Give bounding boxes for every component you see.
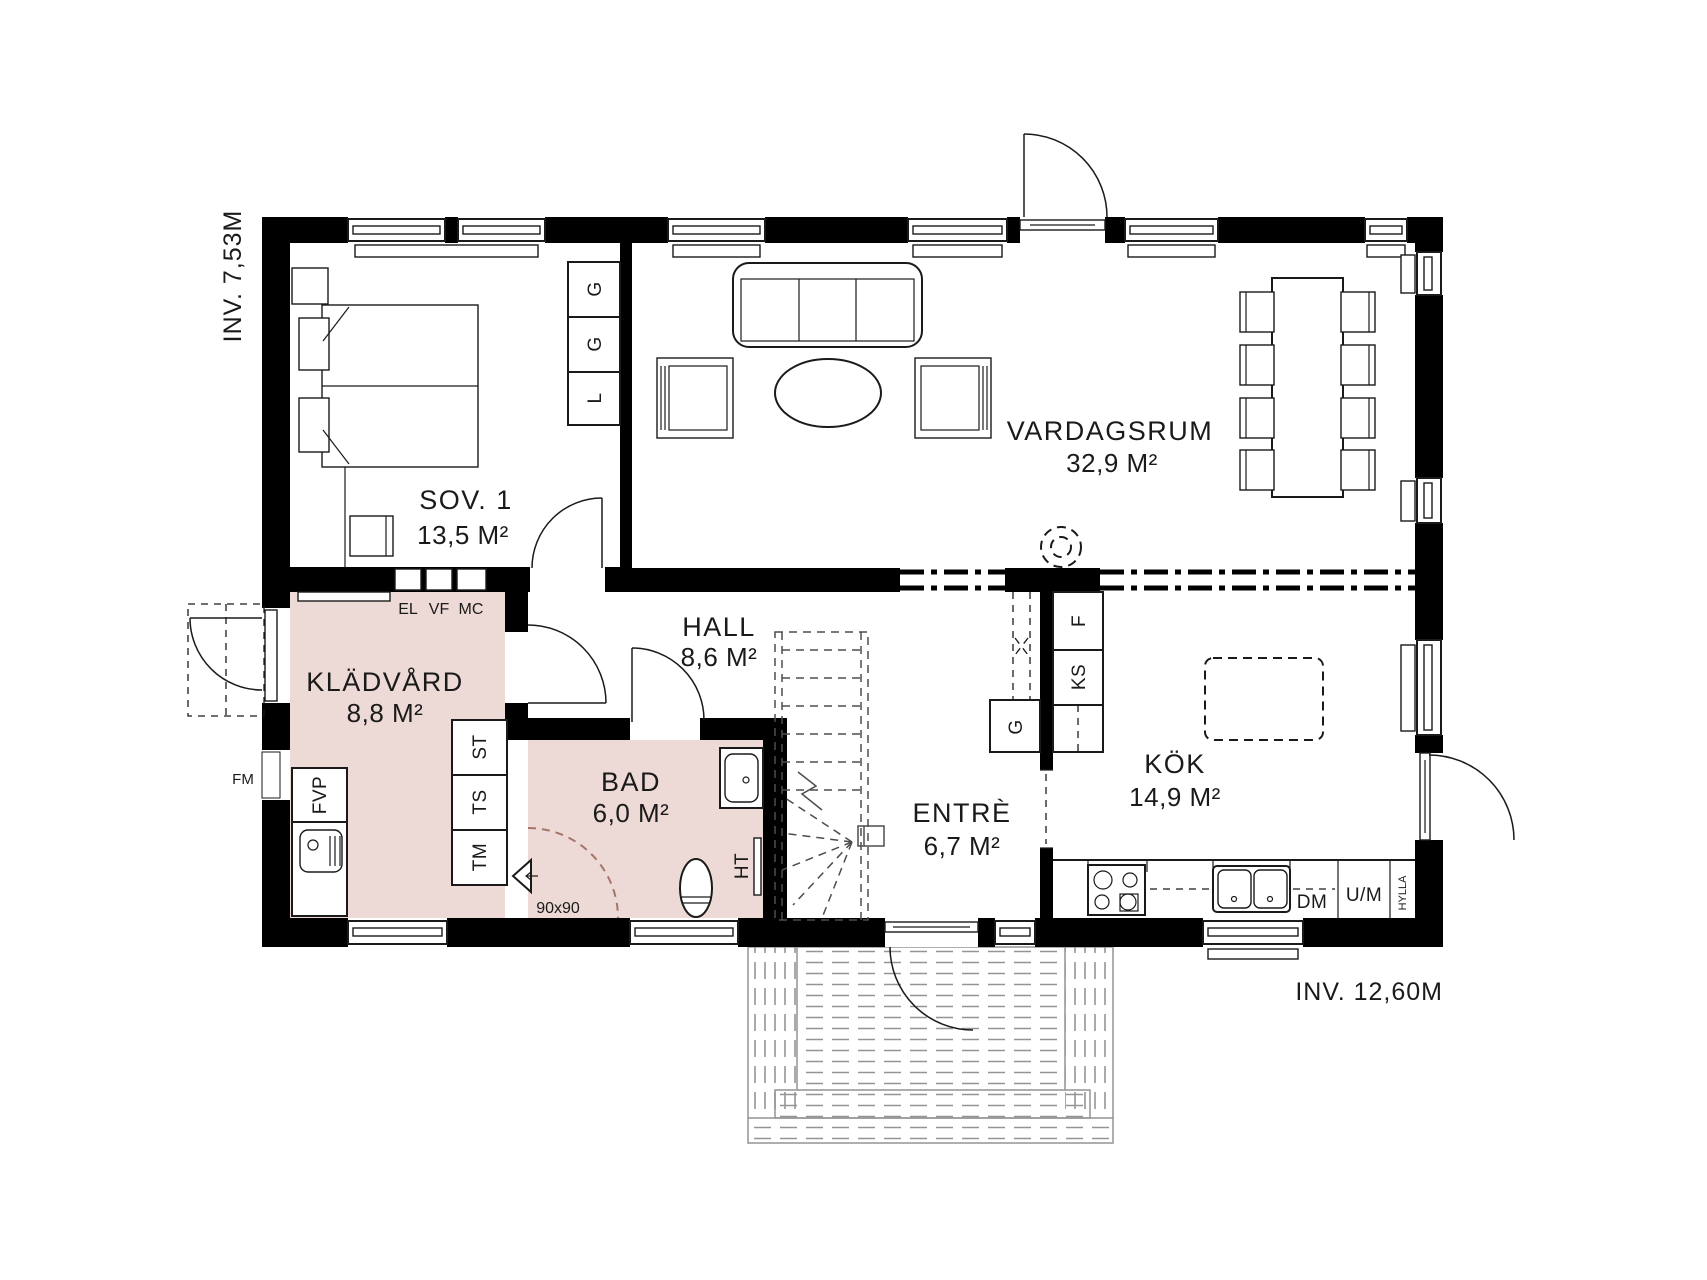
label-st: ST [470, 734, 491, 759]
room-label-hall: HALL [682, 612, 756, 642]
chimney [1041, 527, 1081, 567]
closet-label: G [585, 281, 606, 296]
deck-porch [748, 947, 1113, 1143]
label-fvp: FVP [310, 776, 331, 814]
label-ks: KS [1069, 664, 1090, 690]
dimension-height: INV. 7,53M [219, 210, 247, 343]
label-hylla: HYLLA [1397, 875, 1409, 911]
room-label-entre: ENTRÈ [912, 798, 1011, 828]
label-tm: TM [470, 843, 491, 871]
toilet [680, 859, 712, 917]
window [1203, 921, 1303, 944]
room-area-vardagsrum: 32,9 M² [1066, 448, 1158, 478]
window [1417, 252, 1441, 295]
room-label-sov1: SOV. 1 [419, 485, 513, 515]
room-label-vardagsrum: VARDAGSRUM [1007, 416, 1214, 446]
exterior-door-right [1415, 753, 1514, 840]
room-label-bad: BAD [601, 767, 661, 797]
label-f: F [1069, 615, 1090, 627]
pass-through-opening [1040, 770, 1053, 848]
coffee-table [775, 359, 881, 427]
window [668, 219, 765, 241]
room-area-entre: 6,7 M² [924, 831, 1001, 861]
dining-table [1272, 278, 1343, 497]
closet-label: G [585, 336, 606, 351]
bathroom-sink [720, 748, 763, 808]
window [630, 921, 738, 944]
label-fm: FM [232, 771, 254, 788]
label-ts: TS [470, 789, 491, 814]
room-area-kok: 14,9 M² [1129, 782, 1221, 812]
label-ht: HT [732, 853, 753, 879]
room-label-kok: KÖK [1144, 749, 1206, 779]
floor-plan-page: G G L [0, 0, 1707, 1280]
window [458, 219, 545, 241]
window [1365, 219, 1407, 241]
label-el: EL [398, 601, 418, 618]
stairs [775, 632, 884, 920]
dresser [350, 516, 393, 556]
towel-radiator [754, 838, 761, 895]
label-mc: MC [459, 601, 484, 618]
open-boundary-beam [900, 572, 1415, 588]
room-area-hall: 8,6 M² [681, 642, 758, 672]
room-area-sov1: 13,5 M² [417, 520, 509, 550]
window [348, 921, 447, 944]
interior-door-sov1 [530, 498, 605, 592]
interior-door-kladvard [505, 625, 606, 703]
label-g-entre: G [1006, 719, 1027, 734]
wardrobe-closets: G G L [568, 262, 620, 425]
label-vf: VF [429, 601, 450, 618]
window [1417, 478, 1441, 523]
exterior-door-top [1020, 134, 1107, 243]
fresh-air-vent [262, 752, 280, 798]
sofa [733, 263, 922, 347]
window [995, 921, 1035, 944]
armchair-right [915, 358, 991, 438]
exterior-door-kladvard [188, 604, 290, 716]
duct-shaft [1013, 592, 1030, 700]
label-dm: DM [1297, 892, 1328, 913]
window [348, 219, 445, 241]
window [1125, 219, 1218, 241]
closet-label: L [585, 392, 606, 403]
stove [1088, 865, 1145, 915]
room-area-bad: 6,0 M² [593, 798, 670, 828]
dimension-width: INV. 12,60M [1295, 978, 1443, 1006]
window [908, 219, 1007, 241]
kitchen-sink [1213, 866, 1290, 912]
label-um: U/M [1346, 885, 1382, 906]
armchair-left [657, 358, 733, 438]
kitchen-island [1205, 658, 1323, 740]
floor-plan-canvas: G G L [0, 0, 1707, 1280]
window [1417, 640, 1441, 735]
label-shower-size: 90x90 [536, 900, 580, 917]
room-label-kladvard: KLÄDVÅRD [306, 666, 464, 697]
room-area-kladvard: 8,8 M² [347, 698, 424, 728]
